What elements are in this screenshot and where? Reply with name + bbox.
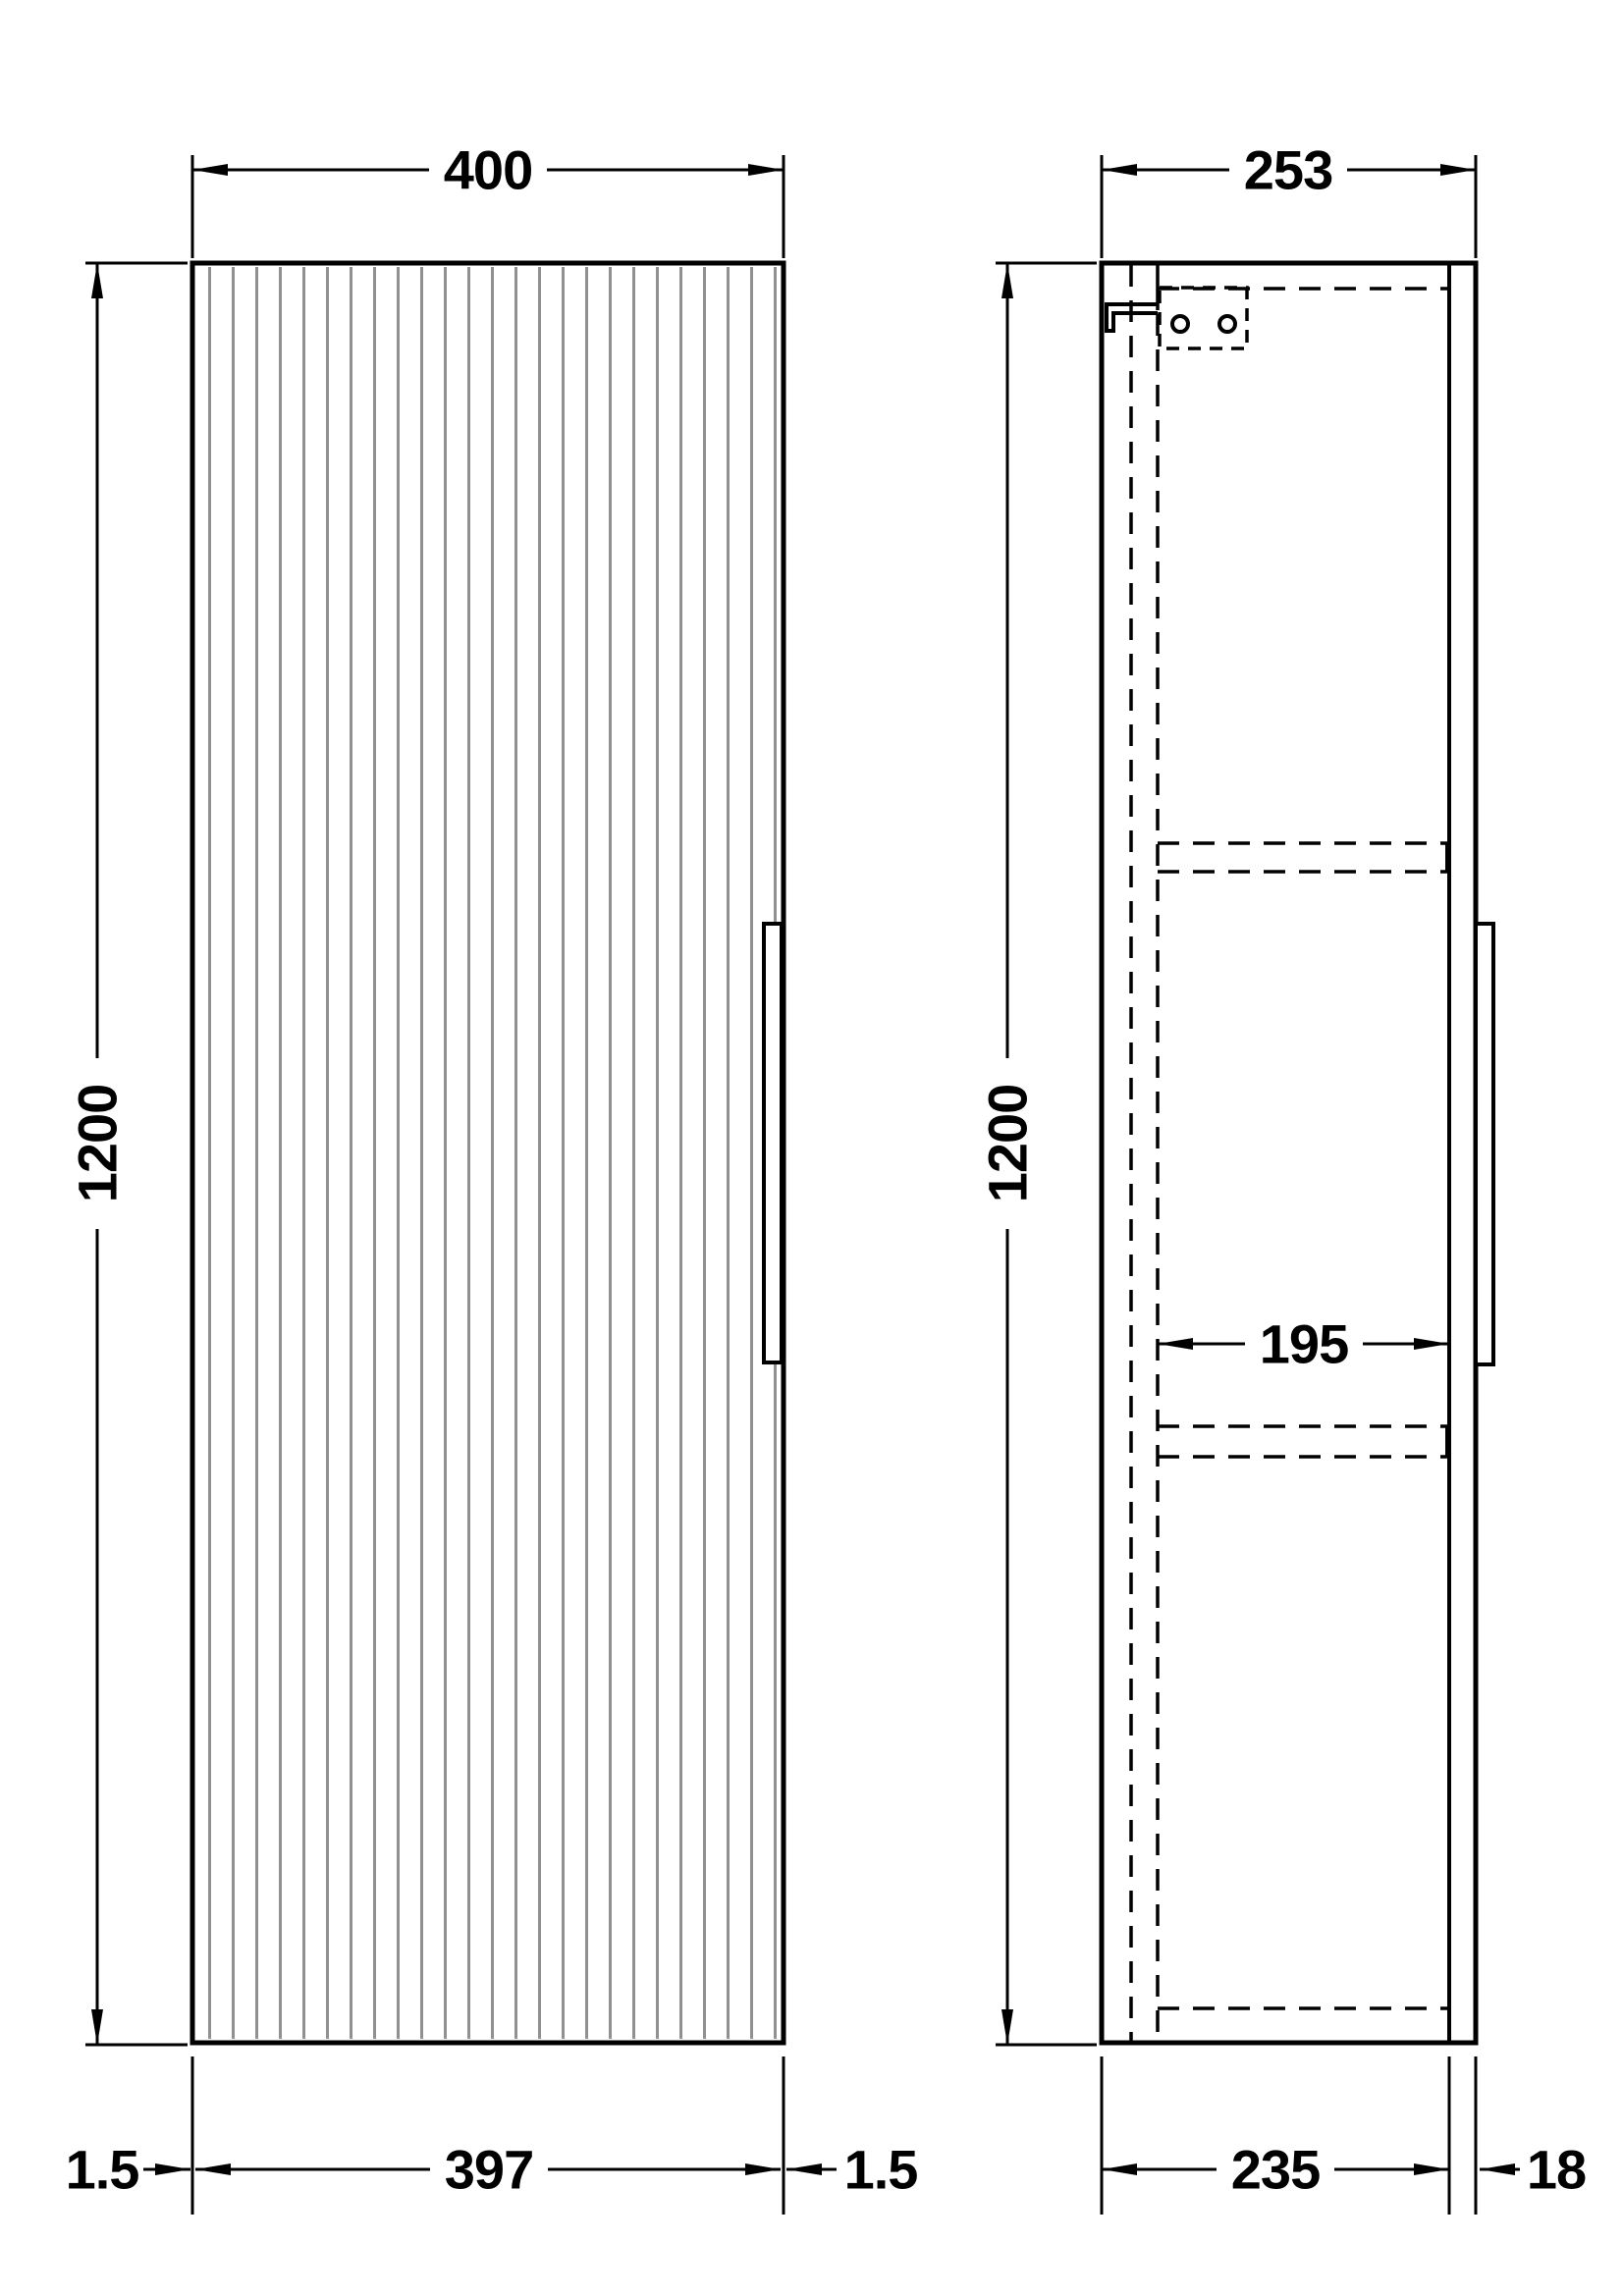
front-door-handle <box>764 924 782 1362</box>
dim-side-bottom: 235 18 <box>1102 2056 1586 2215</box>
gap-right-label: 1.5 <box>844 2139 918 2201</box>
side-door-handle <box>1476 924 1493 1364</box>
door-thickness-label: 18 <box>1527 2139 1586 2201</box>
gap-left-label: 1.5 <box>66 2139 139 2201</box>
internal-depth-label: 195 <box>1260 1313 1348 1375</box>
dim-front-bottom: 397 1.5 1.5 <box>66 2056 918 2215</box>
door-width-label: 397 <box>445 2139 533 2201</box>
dim-front-width: 400 <box>192 139 784 259</box>
dim-side-depth: 253 <box>1102 139 1476 259</box>
front-width-label: 400 <box>444 139 532 201</box>
dim-side-height: 1200 <box>977 263 1098 2045</box>
carcass-depth-label: 235 <box>1231 2139 1320 2201</box>
cabinet-dimension-drawing: 400 253 1200 1200 195 397 <box>0 0 1623 2296</box>
front-view <box>192 263 784 2043</box>
side-view <box>1102 263 1493 2043</box>
bracket-screw-hole-right <box>1219 316 1235 332</box>
side-depth-label: 253 <box>1244 139 1332 201</box>
technical-drawing-canvas: 400 253 1200 1200 195 397 <box>0 0 1623 2296</box>
side-height-label: 1200 <box>977 1085 1039 1203</box>
bracket-screw-hole-left <box>1172 316 1188 332</box>
front-height-label: 1200 <box>67 1085 129 1203</box>
dim-front-height: 1200 <box>67 263 189 2045</box>
fluted-door-texture <box>197 267 779 2039</box>
